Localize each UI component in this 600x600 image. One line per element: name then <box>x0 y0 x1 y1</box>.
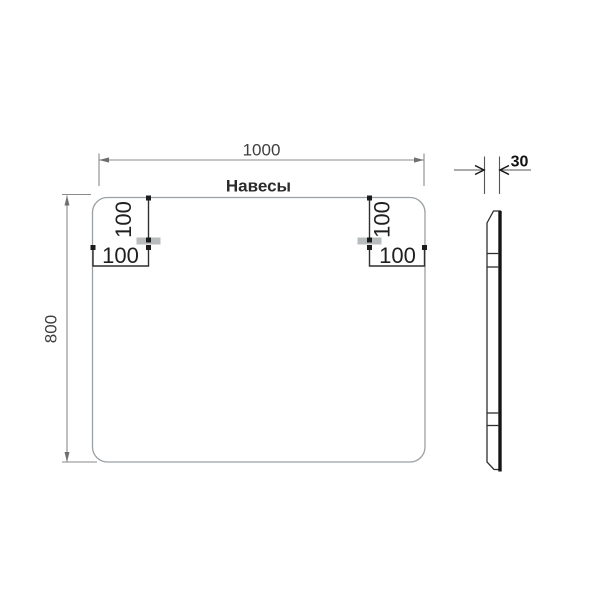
dim-marker <box>367 245 372 250</box>
thickness-dim-text: 30 <box>511 154 529 171</box>
technical-drawing: Навесы 1000 800 100 <box>0 0 600 600</box>
dim-marker <box>367 196 372 201</box>
right-hanger: 100 100 <box>358 196 428 269</box>
dim-marker <box>146 238 151 243</box>
left-hanger: 100 100 <box>91 196 161 269</box>
profile-front-edge <box>498 211 501 472</box>
dim-marker <box>146 196 151 201</box>
mirror-profile <box>487 211 502 472</box>
arrow-right-icon <box>414 157 424 162</box>
thickness-dimension: 30 <box>454 154 531 195</box>
height-dimension: 800 <box>42 195 98 463</box>
left-top-offset-text: 100 <box>111 201 136 238</box>
side-view: 30 <box>454 154 531 472</box>
arrow-down-icon <box>65 452 70 462</box>
right-side-offset-text: 100 <box>379 243 416 268</box>
height-dim-text: 800 <box>42 315 61 343</box>
arrow-up-icon <box>65 196 70 206</box>
dim-marker <box>91 245 96 250</box>
right-top-offset-text: 100 <box>370 201 395 238</box>
dim-marker <box>422 245 427 250</box>
hangers-label: Навесы <box>226 177 291 196</box>
arrow-left-icon <box>99 157 109 162</box>
left-side-offset-text: 100 <box>102 243 139 268</box>
front-view: Навесы 1000 800 100 <box>42 141 428 463</box>
width-dim-text: 1000 <box>243 141 281 160</box>
dim-marker <box>146 245 151 250</box>
drawing-canvas: Навесы 1000 800 100 <box>0 0 600 600</box>
